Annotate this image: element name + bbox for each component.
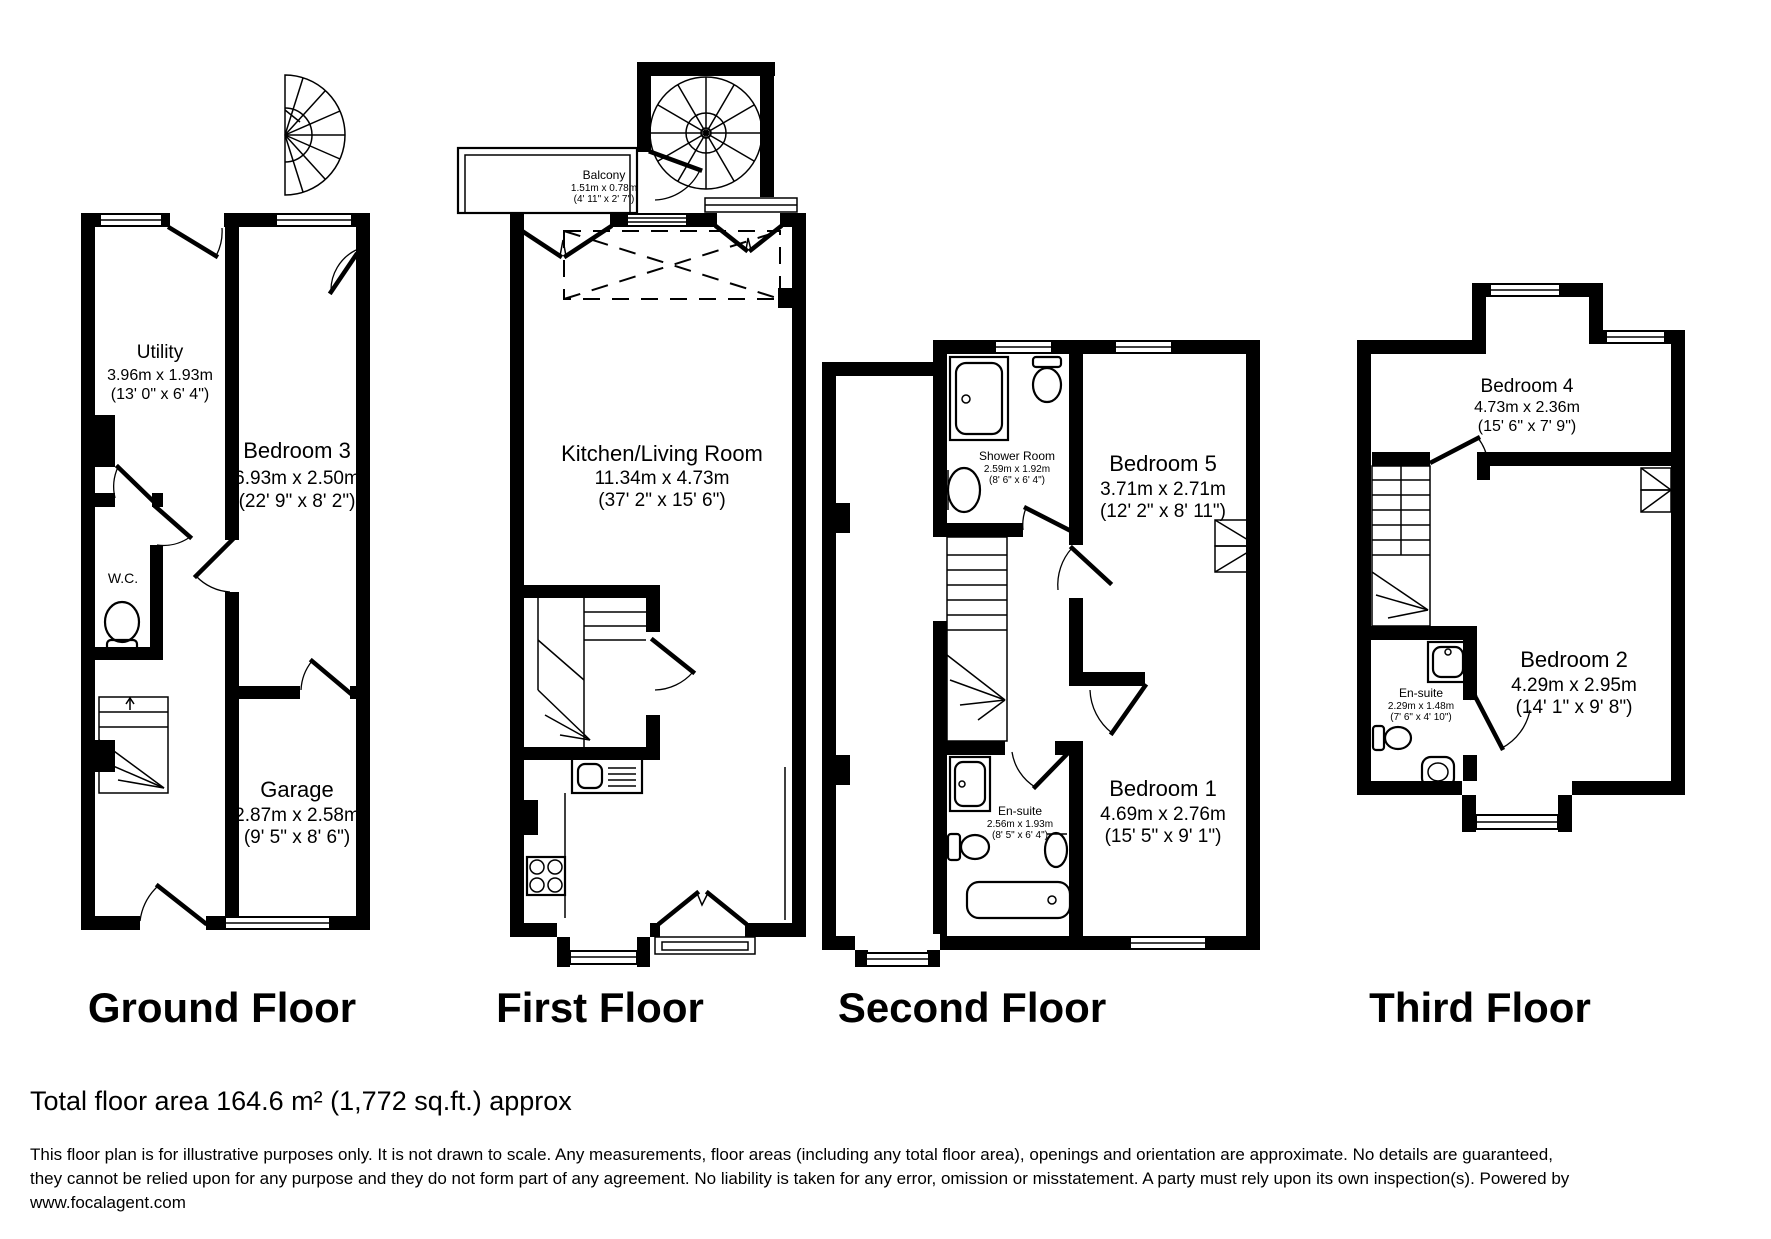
room-dims-bedroom2-m: 4.29m x 2.95m — [1511, 675, 1637, 696]
toilet-icon — [105, 602, 139, 654]
room-dims-kitchen-m: 11.34m x 4.73m — [595, 468, 730, 489]
stove-icon — [527, 857, 565, 895]
room-label-ensuite3f: En-suite — [1399, 686, 1443, 700]
room-dims-shower-ft: (8' 6" x 6' 4") — [989, 475, 1045, 486]
toilet-icon — [948, 834, 989, 860]
room-dims-shower-m: 2.59m x 1.92m — [984, 464, 1050, 475]
second-floor-walls — [822, 340, 1260, 950]
toilet-icon — [1373, 726, 1411, 750]
room-dims-ensuite2f-ft: (8' 5" x 6' 4") — [992, 830, 1048, 841]
ground-floor-plan: Utility 3.96m x 1.93m (13' 0" x 6' 4") B… — [81, 75, 370, 932]
staircase-icon — [1372, 466, 1430, 626]
room-dims-bedroom4-m: 4.73m x 2.36m — [1474, 399, 1580, 416]
room-dims-utility-m: 3.96m x 1.93m — [107, 367, 213, 384]
room-dims-bedroom4-ft: (15' 6" x 7' 9") — [1478, 418, 1576, 435]
half-spiral-stair-icon — [285, 75, 345, 195]
room-dims-balcony-m: 1.51m x 0.78m — [571, 183, 637, 194]
spiral-staircase-icon — [650, 77, 762, 189]
room-label-bedroom3: Bedroom 3 — [243, 438, 351, 463]
basin-icon — [948, 468, 980, 512]
basin-icon — [1045, 833, 1067, 867]
room-dims-garage-ft: (9' 5" x 8' 6") — [244, 827, 350, 848]
disclaimer-line-1: This floor plan is for illustrative purp… — [30, 1143, 1750, 1167]
room-dims-ensuite3f-ft: (7' 6" x 4' 10") — [1390, 712, 1452, 723]
footer: Total floor area 164.6 m² (1,772 sq.ft.)… — [30, 1086, 1750, 1215]
floor-title-third: Third Floor — [1369, 984, 1591, 1031]
staircase-icon — [538, 598, 646, 747]
landing-step — [705, 198, 797, 212]
window — [855, 341, 1206, 967]
room-label-utility: Utility — [137, 342, 184, 363]
third-floor-plan: Bedroom 4 4.73m x 2.36m (15' 6" x 7' 9")… — [1357, 283, 1685, 832]
shower-tray-icon — [950, 357, 1008, 440]
shower-tray-icon — [950, 757, 990, 811]
floor-title-first: First Floor — [496, 984, 704, 1031]
room-dims-ensuite2f-m: 2.56m x 1.93m — [987, 819, 1053, 830]
room-label-bedroom5: Bedroom 5 — [1109, 451, 1217, 476]
staircase-icon — [947, 537, 1007, 741]
floorplan-canvas: Utility 3.96m x 1.93m (13' 0" x 6' 4") B… — [0, 0, 1771, 1070]
room-dims-bedroom3-m: 6.93m x 2.50m — [234, 468, 360, 489]
room-dims-bedroom3-ft: (22' 9" x 8' 2") — [239, 491, 356, 512]
room-dims-bedroom2-ft: (14' 1" x 9' 8") — [1516, 697, 1633, 718]
room-label-bedroom1: Bedroom 1 — [1109, 776, 1217, 801]
total-floor-area: Total floor area 164.6 m² (1,772 sq.ft.)… — [30, 1086, 1750, 1117]
room-dims-bedroom5-ft: (12' 2" x 8' 11") — [1100, 501, 1226, 522]
second-floor-plan: Shower Room 2.59m x 1.92m (8' 6" x 6' 4"… — [822, 340, 1260, 967]
room-label-garage: Garage — [260, 777, 333, 802]
shower-tray-icon — [1428, 642, 1468, 682]
room-dims-garage-m: 2.87m x 2.58m — [234, 805, 360, 826]
first-floor-plan: Balcony 1.51m x 0.78m (4' 11" x 2' 7") K… — [458, 62, 806, 967]
room-dims-balcony-ft: (4' 11" x 2' 7") — [574, 194, 635, 205]
room-dims-bedroom1-ft: (15' 5" x 9' 1") — [1105, 826, 1222, 847]
room-label-ensuite2f: En-suite — [998, 804, 1042, 818]
door-arc — [516, 152, 780, 923]
floor-title-second: Second Floor — [838, 984, 1106, 1031]
sink-icon — [565, 758, 785, 920]
bathtub-icon — [967, 882, 1070, 918]
floor-title-ground: Ground Floor — [88, 984, 356, 1031]
room-label-bedroom4: Bedroom 4 — [1481, 376, 1574, 397]
room-label-wc: W.C. — [108, 570, 138, 586]
disclaimer-line-2: they cannot be relied upon for any purpo… — [30, 1167, 1750, 1191]
room-dims-utility-ft: (13' 0" x 6' 4") — [111, 386, 209, 403]
room-dims-ensuite3f-m: 2.29m x 1.48m — [1388, 701, 1454, 712]
room-dims-bedroom5-m: 3.71m x 2.71m — [1100, 479, 1226, 500]
room-dims-bedroom1-m: 4.69m x 2.76m — [1100, 804, 1226, 825]
room-label-balcony: Balcony — [583, 168, 626, 182]
room-label-shower-room: Shower Room — [979, 449, 1055, 463]
floorplan-page: Utility 3.96m x 1.93m (13' 0" x 6' 4") B… — [0, 0, 1771, 1239]
disclaimer-line-3: www.focalagent.com — [30, 1191, 1750, 1215]
toilet-icon — [1033, 357, 1061, 402]
room-dims-kitchen-ft: (37' 2" x 15' 6") — [598, 490, 725, 511]
wardrobe-icon — [1641, 468, 1671, 512]
room-label-bedroom2: Bedroom 2 — [1520, 647, 1628, 672]
room-label-kitchen-living: Kitchen/Living Room — [561, 441, 763, 466]
third-floor-walls — [1357, 283, 1685, 832]
